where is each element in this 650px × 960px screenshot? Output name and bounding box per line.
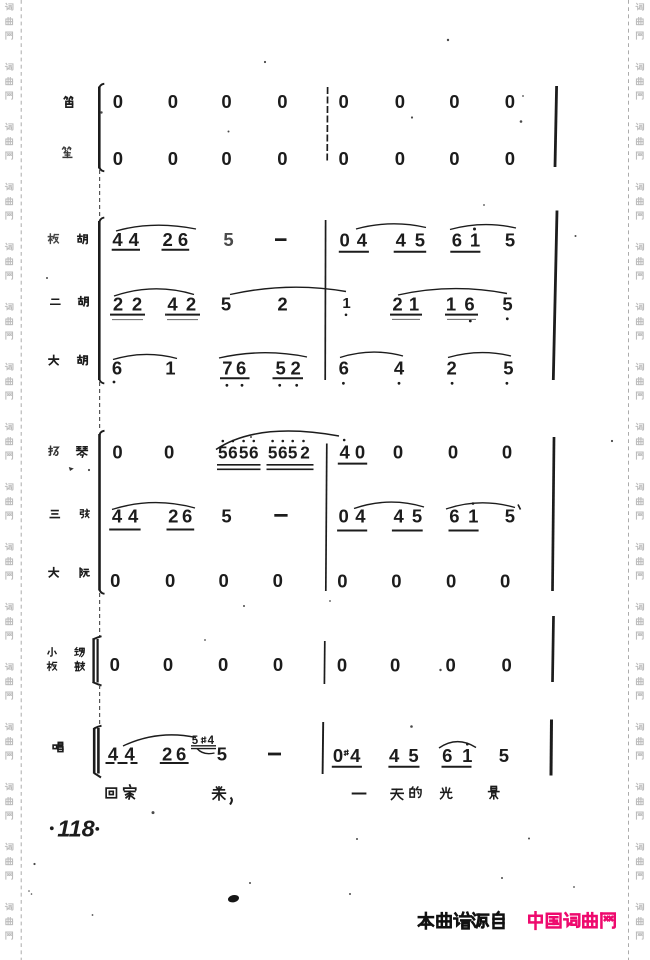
svg-text:2: 2: [186, 294, 196, 315]
svg-text:0: 0: [395, 148, 405, 169]
svg-text:0: 0: [112, 442, 122, 463]
svg-text:6: 6: [442, 745, 452, 766]
svg-text:4: 4: [350, 745, 361, 766]
svg-text:2: 2: [392, 294, 402, 315]
svg-text:0: 0: [277, 148, 287, 169]
svg-text:0: 0: [449, 91, 459, 112]
svg-text:0: 0: [113, 148, 123, 169]
svg-text:2: 2: [447, 358, 457, 379]
svg-text:0: 0: [273, 654, 283, 675]
svg-text:5: 5: [502, 294, 512, 315]
svg-text:0: 0: [391, 571, 401, 592]
svg-text:0: 0: [337, 571, 347, 592]
svg-text:0: 0: [110, 570, 120, 591]
svg-text:0: 0: [164, 442, 174, 463]
svg-text:0: 0: [338, 506, 348, 527]
svg-text:118: 118: [57, 816, 95, 842]
svg-text:0: 0: [502, 442, 512, 463]
svg-text:0: 0: [219, 570, 229, 591]
svg-text:4: 4: [389, 745, 400, 766]
svg-text:2: 2: [113, 294, 123, 315]
svg-text:4: 4: [108, 744, 119, 765]
svg-text:0: 0: [110, 654, 120, 675]
svg-text:0: 0: [221, 148, 231, 169]
svg-text:4: 4: [357, 230, 368, 251]
svg-text:0: 0: [505, 91, 515, 112]
svg-text:0: 0: [338, 91, 348, 112]
svg-text:5: 5: [221, 294, 231, 315]
svg-text:0: 0: [395, 91, 405, 112]
svg-text:2: 2: [163, 229, 173, 250]
svg-text:5: 5: [415, 230, 425, 251]
svg-text:0: 0: [337, 655, 347, 676]
svg-text:0: 0: [221, 91, 231, 112]
svg-text:6: 6: [176, 744, 186, 765]
svg-text:0: 0: [501, 655, 511, 676]
svg-text:2: 2: [300, 443, 310, 463]
svg-text:5: 5: [268, 443, 278, 463]
svg-text:0: 0: [446, 655, 456, 676]
svg-text:2: 2: [162, 744, 172, 765]
svg-text:0: 0: [273, 570, 283, 591]
svg-text:1: 1: [470, 230, 480, 251]
svg-text:0: 0: [390, 655, 400, 676]
svg-text:0: 0: [338, 148, 348, 169]
svg-text:6: 6: [339, 358, 349, 379]
svg-text:6: 6: [178, 229, 188, 250]
svg-text:6: 6: [182, 506, 192, 527]
svg-text:6: 6: [249, 443, 259, 463]
svg-text:5: 5: [412, 506, 422, 527]
svg-text:5: 5: [239, 443, 249, 463]
svg-text:4: 4: [129, 229, 140, 250]
svg-text:6: 6: [464, 294, 474, 315]
svg-text:0: 0: [355, 442, 365, 463]
svg-text:5: 5: [223, 229, 233, 250]
svg-text:4: 4: [355, 506, 366, 527]
svg-text:0: 0: [500, 571, 510, 592]
svg-text:6: 6: [278, 443, 288, 463]
svg-text:0: 0: [168, 148, 178, 169]
svg-text:0: 0: [448, 442, 458, 463]
svg-text:5: 5: [276, 358, 286, 379]
svg-text:4: 4: [128, 506, 139, 527]
svg-text:0: 0: [449, 148, 459, 169]
svg-text:0: 0: [446, 571, 456, 592]
svg-text:5: 5: [408, 745, 418, 766]
svg-text:2: 2: [132, 294, 142, 315]
svg-text:0: 0: [277, 91, 287, 112]
svg-text:1: 1: [409, 294, 419, 315]
svg-text:4: 4: [396, 230, 407, 251]
svg-text:2: 2: [277, 294, 287, 315]
svg-text:5: 5: [503, 358, 513, 379]
svg-text:2: 2: [291, 358, 301, 379]
svg-text:2: 2: [168, 506, 178, 527]
svg-text:1: 1: [462, 745, 472, 766]
svg-text:6: 6: [449, 506, 459, 527]
svg-text:1: 1: [446, 294, 456, 315]
svg-text:5: 5: [505, 506, 515, 527]
svg-text:4: 4: [167, 294, 178, 315]
svg-text:1: 1: [468, 506, 478, 527]
svg-text:0: 0: [393, 442, 403, 463]
svg-text:0: 0: [333, 745, 343, 766]
svg-text:4: 4: [394, 358, 405, 379]
svg-text:5: 5: [221, 506, 231, 527]
svg-text:6: 6: [112, 358, 122, 379]
svg-text:0: 0: [165, 570, 175, 591]
svg-text:7: 7: [222, 358, 232, 379]
svg-text:4: 4: [124, 744, 135, 765]
svg-text:6: 6: [236, 358, 246, 379]
svg-text:5: 5: [217, 744, 227, 765]
svg-text:0: 0: [218, 654, 228, 675]
svg-text:1: 1: [342, 295, 350, 312]
svg-text:4: 4: [340, 442, 351, 463]
svg-text:0: 0: [340, 230, 350, 251]
svg-text:6: 6: [228, 443, 238, 463]
svg-text:5: 5: [288, 443, 298, 463]
svg-text:6: 6: [452, 230, 462, 251]
svg-text:4: 4: [393, 506, 404, 527]
svg-text:5: 5: [505, 230, 515, 251]
svg-text:0: 0: [113, 91, 123, 112]
svg-text:0: 0: [168, 91, 178, 112]
svg-text:0: 0: [505, 148, 515, 169]
svg-text:5: 5: [499, 745, 509, 766]
svg-text:1: 1: [165, 358, 175, 379]
svg-text:0: 0: [163, 654, 173, 675]
svg-text:4: 4: [112, 229, 123, 250]
